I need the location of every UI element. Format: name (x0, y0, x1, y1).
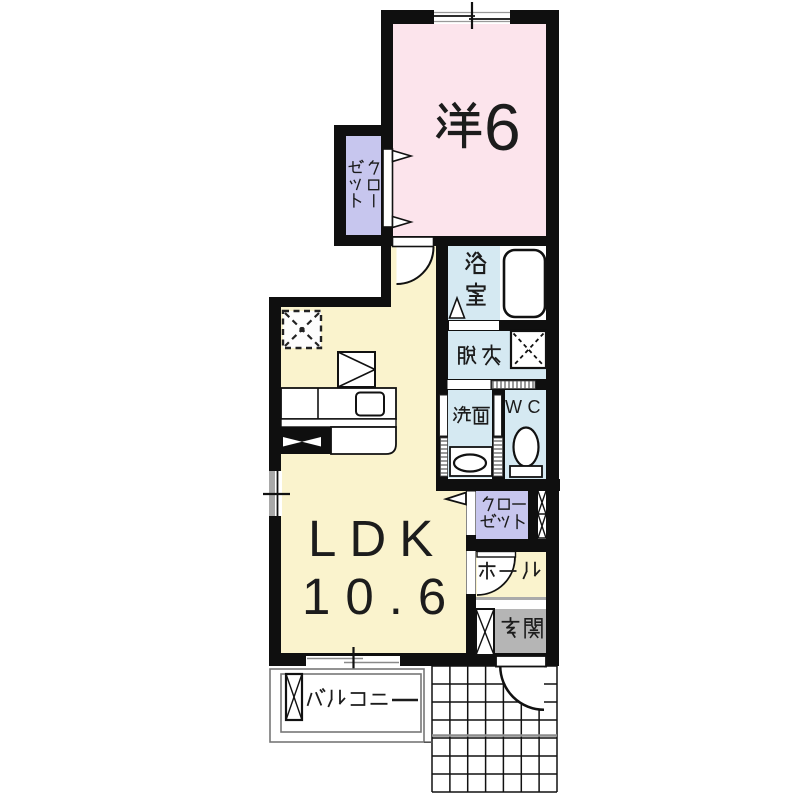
svg-text:10.6: 10.6 (302, 568, 461, 625)
svg-text:6: 6 (484, 90, 521, 164)
svg-text:LDK: LDK (308, 510, 446, 567)
svg-text:WC: WC (505, 397, 546, 417)
